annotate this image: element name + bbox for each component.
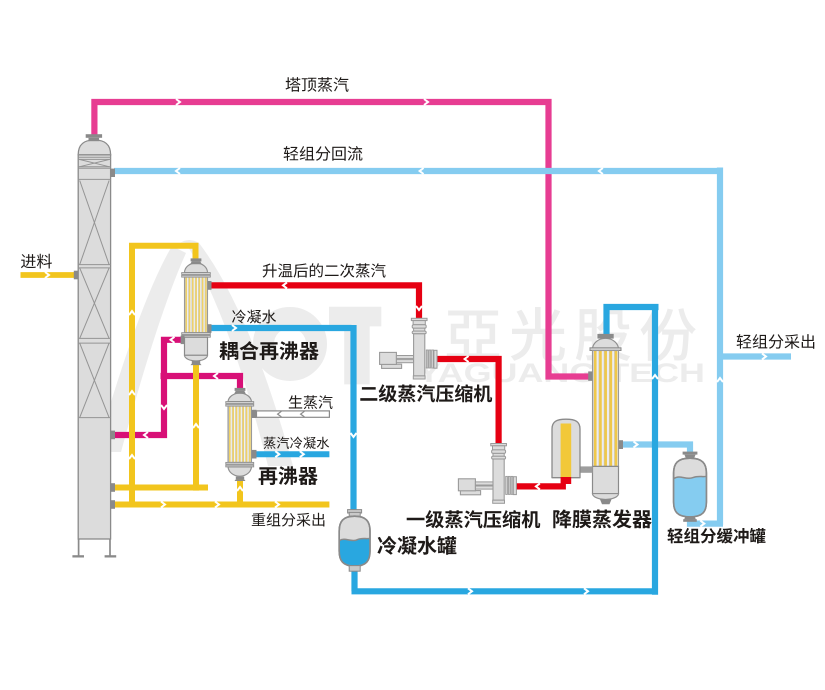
svg-text:YAGUANG TECH: YAGUANG TECH [417, 358, 705, 388]
